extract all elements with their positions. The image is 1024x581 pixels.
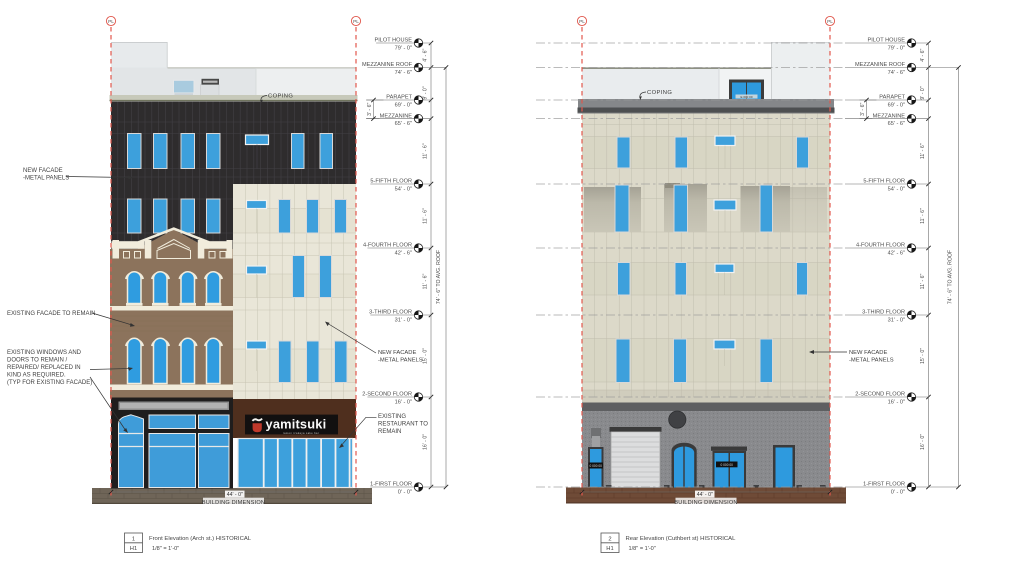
svg-text:PARAPET: PARAPET: [879, 95, 905, 101]
svg-text:69' - 0": 69' - 0": [395, 102, 412, 108]
svg-text:NEW FACADE: NEW FACADE: [23, 168, 63, 174]
svg-text:(TYP FOR EXISTING FACADE): (TYP FOR EXISTING FACADE): [7, 380, 92, 386]
svg-text:1-FIRST FLOOR: 1-FIRST FLOOR: [370, 482, 412, 488]
svg-text:11' - 6": 11' - 6": [920, 273, 926, 289]
svg-text:yamitsuki: yamitsuki: [266, 417, 327, 432]
svg-text:EXISTING FACADE TO REMAIN: EXISTING FACADE TO REMAIN: [7, 311, 95, 317]
svg-text:5-FIFTH FLOOR: 5-FIFTH FLOOR: [370, 179, 412, 185]
svg-text:PL: PL: [579, 19, 585, 25]
svg-text:BUILDING DIMENSION: BUILDING DIMENSION: [202, 500, 265, 506]
svg-text:69' - 0": 69' - 0": [888, 102, 905, 108]
svg-text:9' - 0": 9' - 0": [423, 86, 429, 99]
svg-text:KIND AS REQUIRED.: KIND AS REQUIRED.: [7, 373, 66, 379]
svg-text:1/8" = 1'-0": 1/8" = 1'-0": [629, 546, 656, 552]
svg-text:H1: H1: [606, 546, 613, 552]
svg-text:1-FIRST FLOOR: 1-FIRST FLOOR: [863, 482, 905, 488]
svg-text:BUILDING DIMENSION: BUILDING DIMENSION: [674, 500, 737, 506]
svg-text:DOORS TO REMAIN /: DOORS TO REMAIN /: [7, 358, 67, 364]
svg-text:31' - 0": 31' - 0": [395, 317, 412, 323]
svg-text:42' - 6": 42' - 6": [395, 250, 412, 256]
svg-text:EXISTING: EXISTING: [378, 414, 406, 420]
svg-text:16' - 0": 16' - 0": [888, 399, 905, 405]
svg-text:74' - 6": 74' - 6": [888, 70, 905, 76]
svg-text:16' - 0": 16' - 0": [920, 434, 926, 450]
svg-text:MEZZANINE ROOF: MEZZANINE ROOF: [855, 62, 906, 68]
svg-text:E 000 00: E 000 00: [740, 95, 752, 99]
svg-text:-METAL PANELS: -METAL PANELS: [378, 358, 423, 364]
svg-text:31' - 0": 31' - 0": [888, 317, 905, 323]
svg-text:79' - 0": 79' - 0": [888, 45, 905, 51]
svg-text:ramen izakaya sake bar: ramen izakaya sake bar: [283, 431, 319, 435]
svg-text:5-FIFTH FLOOR: 5-FIFTH FLOOR: [863, 179, 905, 185]
svg-text:11' - 6": 11' - 6": [423, 143, 429, 159]
svg-text:-METAL PANELS: -METAL PANELS: [23, 176, 69, 182]
svg-text:3' - 6": 3' - 6": [367, 103, 373, 116]
svg-text:EXISTING WINDOWS AND: EXISTING WINDOWS AND: [7, 350, 82, 356]
svg-text:54' - 0": 54' - 0": [395, 186, 412, 192]
svg-text:COPING: COPING: [647, 90, 672, 96]
svg-text:Rear Elevation (Cuthbert st) H: Rear Elevation (Cuthbert st) HISTORICAL: [626, 536, 737, 542]
svg-text:79' - 0": 79' - 0": [395, 45, 412, 51]
svg-text:Front Elevation (Arch st.) HIS: Front Elevation (Arch st.) HISTORICAL: [149, 536, 252, 542]
svg-text:RESTAURANT TO: RESTAURANT TO: [378, 422, 428, 428]
svg-text:H1: H1: [130, 546, 137, 552]
svg-text:2: 2: [608, 536, 611, 542]
svg-text:54' - 0": 54' - 0": [888, 186, 905, 192]
svg-text:42' - 6": 42' - 6": [888, 250, 905, 256]
svg-text:PILOT HOUSE: PILOT HOUSE: [867, 38, 905, 44]
svg-text:16' - 0": 16' - 0": [423, 434, 429, 450]
svg-text:65' - 6": 65' - 6": [888, 121, 905, 127]
svg-text:PILOT HOUSE: PILOT HOUSE: [374, 38, 412, 44]
svg-text:MEZZANINE: MEZZANINE: [873, 113, 906, 119]
svg-text:1: 1: [132, 536, 135, 542]
svg-text:NEW FACADE: NEW FACADE: [849, 350, 887, 356]
svg-text:65' - 6": 65' - 6": [395, 121, 412, 127]
svg-text:REMAIN: REMAIN: [378, 429, 401, 435]
svg-text:11' - 6": 11' - 6": [423, 208, 429, 224]
svg-text:15' - 0": 15' - 0": [920, 348, 926, 364]
svg-text:-METAL PANELS: -METAL PANELS: [849, 358, 894, 364]
svg-text:44' - 0": 44' - 0": [227, 492, 243, 498]
svg-text:PARAPET: PARAPET: [386, 95, 412, 101]
svg-text:4' - 6": 4' - 6": [423, 48, 429, 61]
svg-text:0' - 0": 0' - 0": [398, 489, 412, 495]
svg-text:15' - 0": 15' - 0": [423, 348, 429, 364]
svg-text:2-SECOND FLOOR: 2-SECOND FLOOR: [362, 392, 412, 398]
svg-text:PL: PL: [353, 19, 359, 25]
svg-text:74' - 6": 74' - 6": [395, 70, 412, 76]
svg-text:3-THIRD FLOOR: 3-THIRD FLOOR: [369, 310, 412, 316]
svg-text:4-FOURTH FLOOR: 4-FOURTH FLOOR: [363, 243, 412, 249]
svg-text:NEW FACADE: NEW FACADE: [378, 350, 416, 356]
svg-text:0 000 00: 0 000 00: [720, 463, 733, 467]
svg-text:3-THIRD FLOOR: 3-THIRD FLOOR: [862, 310, 905, 316]
svg-text:COPING: COPING: [268, 94, 293, 100]
svg-text:0 000 00: 0 000 00: [589, 464, 602, 468]
svg-text:MEZZANINE ROOF: MEZZANINE ROOF: [362, 62, 413, 68]
svg-text:44' - 0": 44' - 0": [697, 492, 713, 498]
svg-text:11' - 6": 11' - 6": [920, 143, 926, 159]
svg-text:1/8" = 1'-0": 1/8" = 1'-0": [152, 546, 179, 552]
svg-text:74' - 6" TO AVG. ROOF: 74' - 6" TO AVG. ROOF: [948, 250, 954, 304]
svg-text:11' - 6": 11' - 6": [920, 208, 926, 224]
svg-text:PL: PL: [108, 19, 114, 25]
svg-text:0' - 0": 0' - 0": [891, 489, 905, 495]
svg-text:9' - 0": 9' - 0": [920, 86, 926, 99]
svg-text:3' - 6": 3' - 6": [860, 103, 866, 116]
svg-text:74' - 6" TO AVG. ROOF: 74' - 6" TO AVG. ROOF: [436, 250, 442, 304]
svg-text:2-SECOND FLOOR: 2-SECOND FLOOR: [855, 392, 905, 398]
svg-text:4' - 6": 4' - 6": [920, 48, 926, 61]
svg-text:REPAIRED/ REPLACED IN: REPAIRED/ REPLACED IN: [7, 365, 81, 371]
svg-text:4-FOURTH FLOOR: 4-FOURTH FLOOR: [856, 243, 905, 249]
svg-text:16' - 0": 16' - 0": [395, 399, 412, 405]
svg-text:PL: PL: [827, 19, 833, 25]
svg-text:11' - 6": 11' - 6": [423, 273, 429, 289]
svg-text:MEZZANINE: MEZZANINE: [380, 113, 413, 119]
